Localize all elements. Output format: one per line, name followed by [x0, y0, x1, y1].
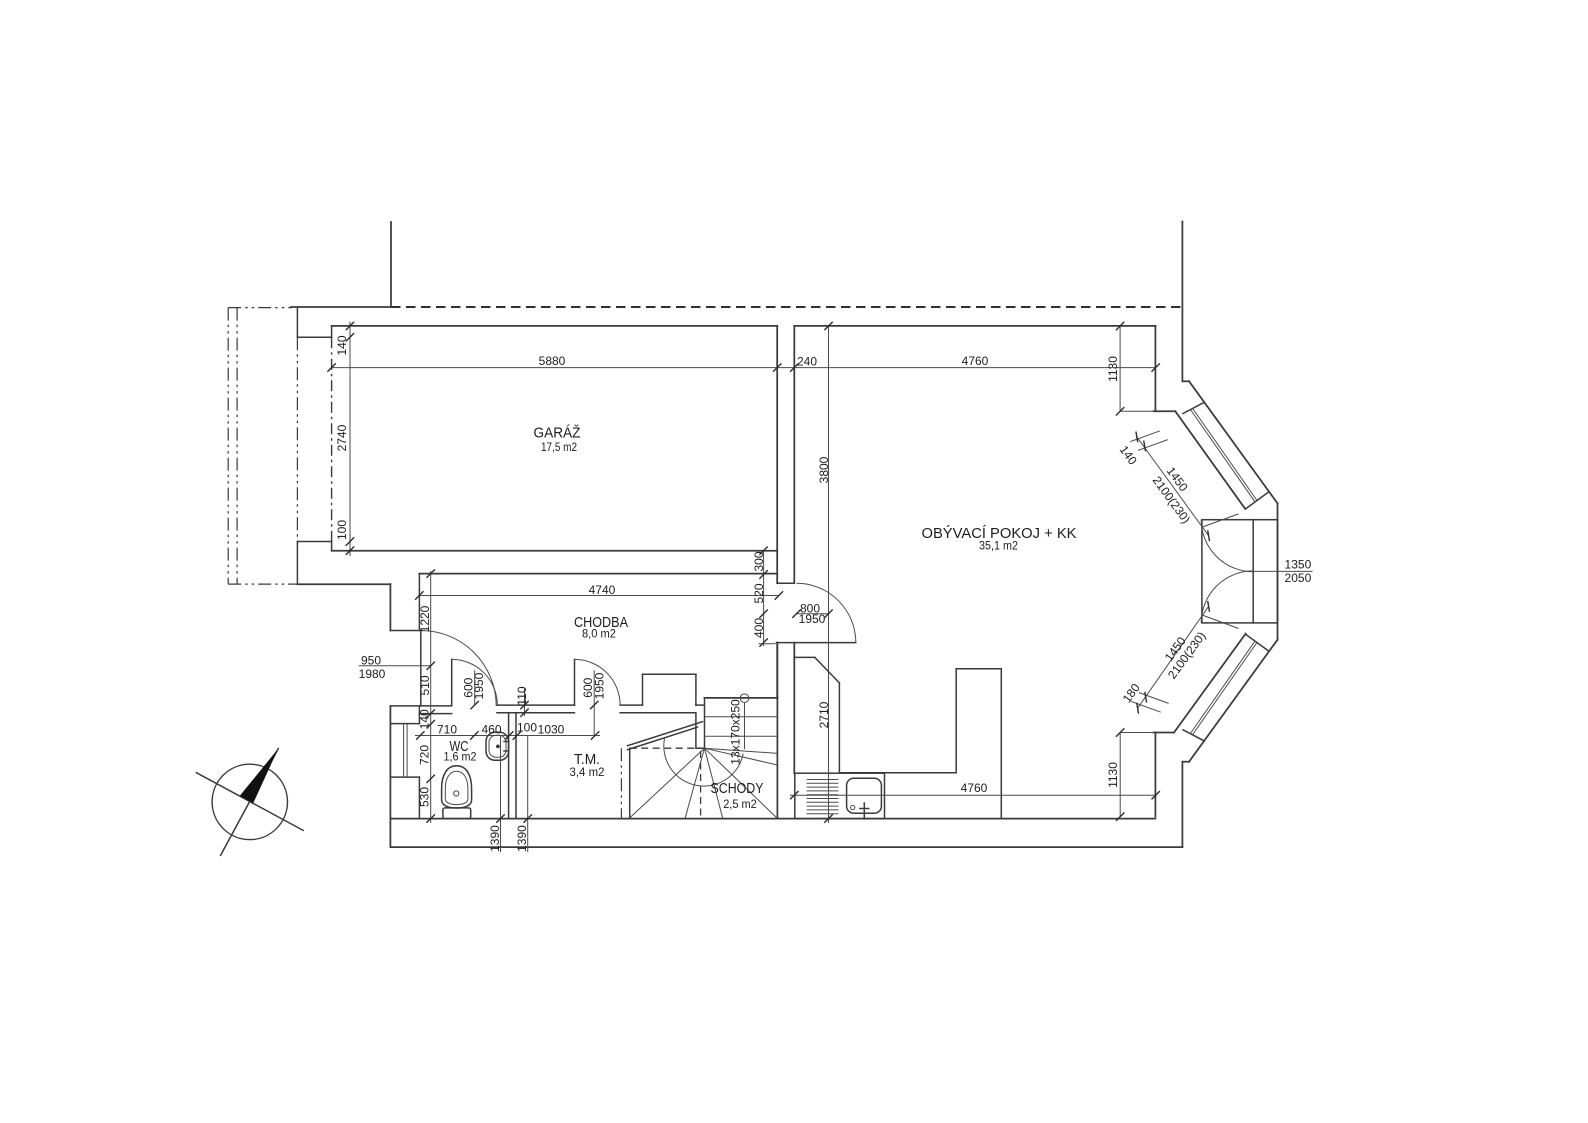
svg-text:4760: 4760 [962, 354, 989, 368]
svg-text:T.M.: T.M. [574, 751, 600, 768]
svg-text:710: 710 [437, 722, 457, 736]
svg-text:100: 100 [335, 520, 349, 540]
svg-text:2,5 m2: 2,5 m2 [723, 799, 757, 811]
svg-text:3,4 m2: 3,4 m2 [570, 767, 605, 779]
svg-text:35,1 m2: 35,1 m2 [979, 541, 1018, 553]
svg-text:3800: 3800 [817, 456, 831, 483]
svg-text:1390: 1390 [488, 825, 502, 852]
svg-text:400: 400 [752, 618, 766, 638]
svg-text:SCHODY: SCHODY [711, 780, 764, 797]
svg-text:1950: 1950 [799, 612, 826, 626]
svg-text:1130: 1130 [1106, 356, 1120, 382]
svg-text:17,5 m2: 17,5 m2 [541, 442, 577, 454]
svg-text:GARÁŽ: GARÁŽ [534, 425, 581, 442]
svg-text:1030: 1030 [538, 722, 565, 736]
svg-text:530: 530 [417, 787, 431, 807]
svg-text:950: 950 [361, 653, 381, 667]
svg-text:510: 510 [418, 675, 432, 695]
svg-text:13x170x250: 13x170x250 [729, 699, 743, 765]
svg-text:OBÝVACÍ POKOJ + KK: OBÝVACÍ POKOJ + KK [922, 525, 1077, 542]
svg-text:1390: 1390 [515, 825, 529, 852]
svg-text:520: 520 [752, 583, 766, 603]
svg-text:4740: 4740 [589, 583, 616, 597]
svg-text:1130: 1130 [1106, 762, 1120, 788]
svg-text:140: 140 [335, 335, 349, 355]
svg-text:1950: 1950 [593, 672, 607, 699]
svg-text:720: 720 [417, 745, 431, 765]
svg-text:4760: 4760 [961, 781, 988, 795]
svg-text:1220: 1220 [418, 605, 432, 632]
svg-text:2710: 2710 [817, 701, 831, 728]
svg-text:240: 240 [797, 355, 817, 369]
svg-text:2740: 2740 [335, 424, 349, 451]
svg-text:2050: 2050 [1285, 571, 1312, 585]
svg-text:8,0 m2: 8,0 m2 [582, 628, 616, 640]
svg-text:5880: 5880 [539, 354, 566, 368]
svg-text:1350: 1350 [1285, 557, 1312, 571]
svg-text:1980: 1980 [359, 667, 386, 681]
svg-text:1,6 m2: 1,6 m2 [444, 752, 477, 764]
svg-text:1950: 1950 [472, 672, 486, 699]
svg-text:460: 460 [481, 723, 501, 737]
